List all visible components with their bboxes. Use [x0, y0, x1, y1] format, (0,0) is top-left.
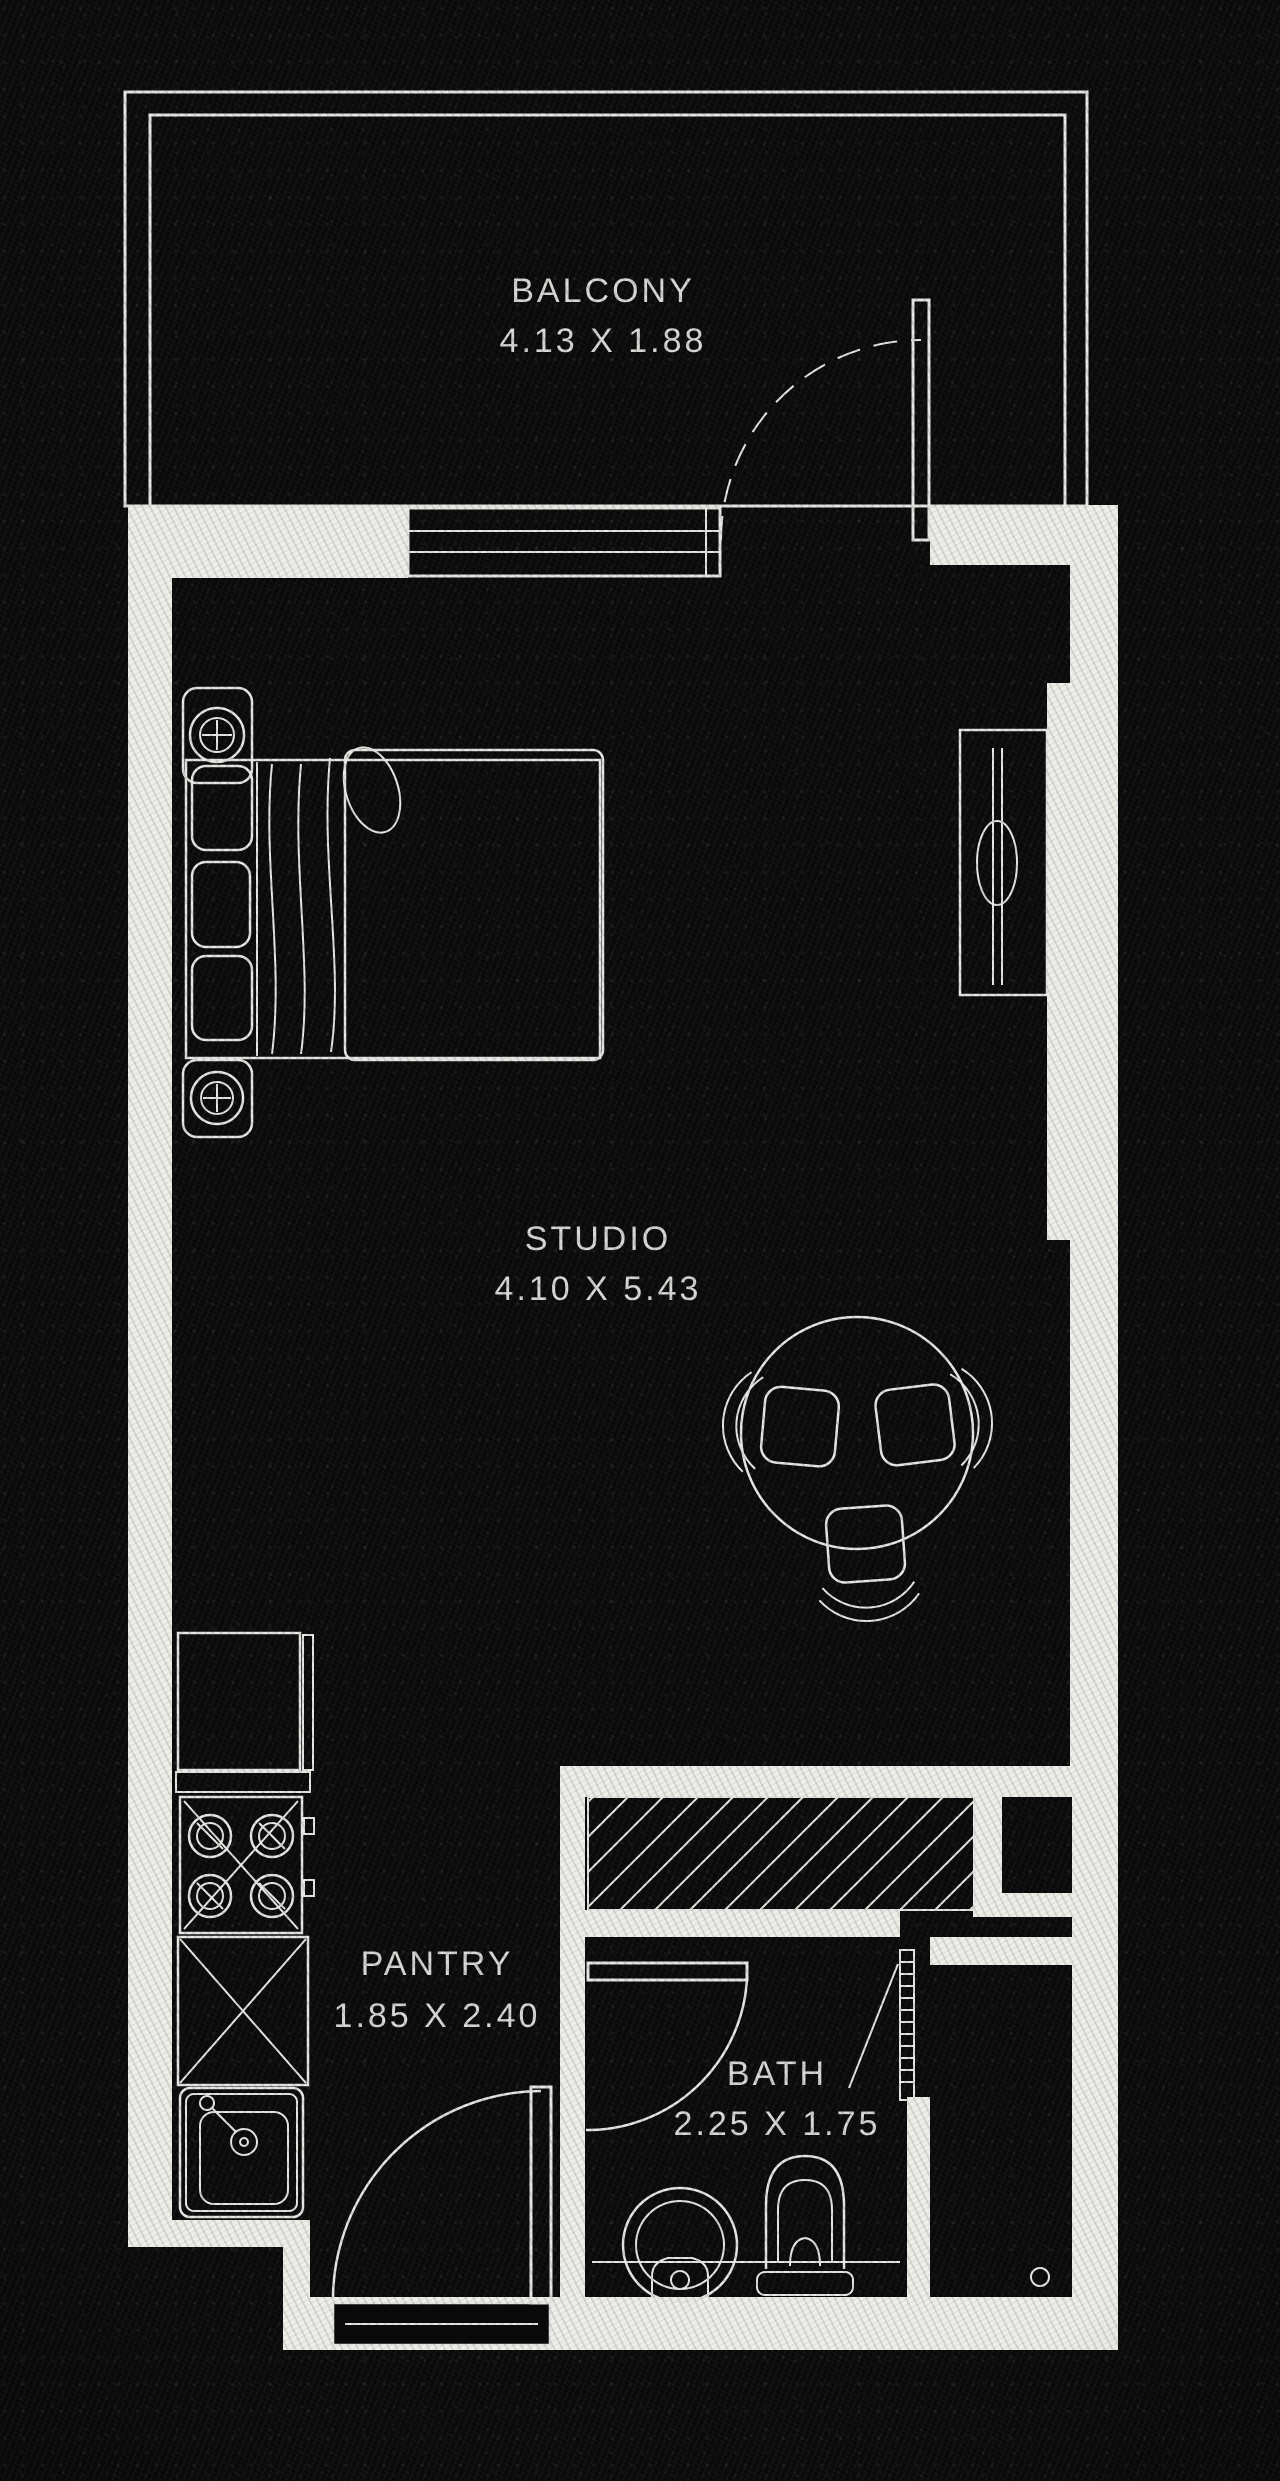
balcony-dimensions: 4.13 X 1.88 [500, 322, 707, 360]
toilet-tank [757, 2272, 853, 2295]
faucet-arm [211, 2107, 236, 2132]
bath-label: BATH [727, 2055, 827, 2093]
shower-door [849, 1950, 914, 2100]
chair-seat [874, 1383, 957, 1467]
counter-divider [176, 1772, 310, 1792]
studio-dimensions: 4.10 X 5.43 [495, 1270, 702, 1308]
bed [186, 740, 603, 1060]
wall-bath-upper-band [585, 1910, 900, 1937]
counter-unit [178, 1937, 308, 2085]
bed-duvet [345, 750, 603, 1060]
counter-x [180, 1939, 306, 2083]
stove-cross-lines [184, 1801, 298, 1929]
hatch-lines [588, 1797, 975, 1910]
lamp-1-cross [202, 720, 232, 750]
chair-bottom [813, 1504, 921, 1625]
nightstand-1 [183, 688, 252, 783]
chair-seat [760, 1386, 840, 1468]
stove-control [304, 1818, 314, 1834]
wall-pantry-bath-divider [560, 1766, 585, 2307]
bath-sink [623, 2188, 737, 2302]
wardrobe [960, 730, 1047, 995]
wall-bath-right [907, 2097, 930, 2297]
wall-right-lining [1047, 683, 1073, 1240]
bed-pillow-1 [192, 766, 252, 850]
entrance-door-swing-arc [333, 2091, 541, 2300]
sink-basin [200, 2112, 288, 2204]
window-glazing-lines [408, 508, 720, 576]
wardrobe-outline [960, 730, 1047, 995]
faucet-dot [240, 2138, 248, 2146]
shower-door-swing-line [849, 1964, 898, 2088]
entrance-door [333, 2087, 551, 2345]
chair-upper-left [719, 1370, 841, 1480]
bath-fixtures [592, 2156, 1049, 2302]
faucet-base [200, 2096, 214, 2110]
basin-pedestal [652, 2258, 708, 2297]
floor-plan-svg: BALCONY 4.13 X 1.88 STUDIO 4.10 X 5.43 P… [0, 0, 1280, 2481]
bed-pillow-2 [192, 862, 250, 947]
bath-dimensions: 2.25 X 1.75 [674, 2105, 881, 2143]
toilet [757, 2156, 853, 2295]
shower-hatch [588, 1797, 975, 1910]
chair-backrest [818, 1581, 920, 1624]
balcony-label: BALCONY [511, 272, 695, 310]
lamp-2-cross [203, 1084, 231, 1112]
toilet-bowl-inner [778, 2180, 832, 2262]
wall-right-upper [1070, 565, 1118, 1770]
wall-left-bottom-band [128, 2220, 290, 2247]
balcony-window [408, 508, 720, 576]
wardrobe-door-panel [993, 748, 1002, 985]
counter-side-panel [303, 1635, 313, 1770]
faucet-head [231, 2129, 257, 2155]
dining-set [719, 1317, 998, 1624]
chair-backrest [950, 1366, 998, 1470]
stove-control [304, 1880, 314, 1896]
wall-right-lower [1072, 1770, 1118, 2350]
floor-plan-photo: BALCONY 4.13 X 1.88 STUDIO 4.10 X 5.43 P… [0, 0, 1280, 2481]
bath-door-leaf [588, 1963, 747, 1980]
wall-closet-top [930, 1937, 1073, 1965]
window-frame [408, 508, 720, 576]
kitchen-units [176, 1633, 314, 2217]
walls [128, 505, 1118, 2350]
bed-blanket-folds [269, 758, 335, 1054]
basin-drain [671, 2271, 689, 2289]
wall-duct-left [973, 1797, 1002, 1893]
studio-label: STUDIO [525, 1220, 671, 1258]
chair-upper-right [872, 1366, 997, 1479]
wardrobe-handle [977, 821, 1017, 905]
refrigerator [178, 1633, 300, 1770]
bed-outline [186, 760, 600, 1058]
kitchen-sink [180, 2088, 303, 2217]
stove [180, 1797, 314, 1933]
basin-inner [636, 2201, 724, 2289]
shower-door-strip [900, 1950, 914, 2100]
wall-duct-bottom [973, 1893, 1118, 1917]
dining-table [741, 1317, 973, 1549]
bed-pillow-3 [192, 956, 252, 1040]
basin-outer [623, 2188, 737, 2302]
pantry-label: PANTRY [361, 1945, 514, 1983]
pantry-dimensions: 1.85 X 2.40 [334, 1997, 541, 2035]
wall-bath-top-band [560, 1766, 1118, 1797]
wall-left [128, 506, 172, 2247]
floor-drain [1031, 2268, 1049, 2286]
balcony-door-swing-arc [721, 340, 921, 540]
shower-door-hatching [900, 1962, 914, 2082]
wall-top-right-band [930, 505, 1118, 565]
balcony-door-leaf [913, 300, 929, 540]
nightstand-2 [183, 1060, 252, 1137]
balcony-door [721, 300, 929, 540]
entrance-door-leaf [531, 2087, 551, 2303]
